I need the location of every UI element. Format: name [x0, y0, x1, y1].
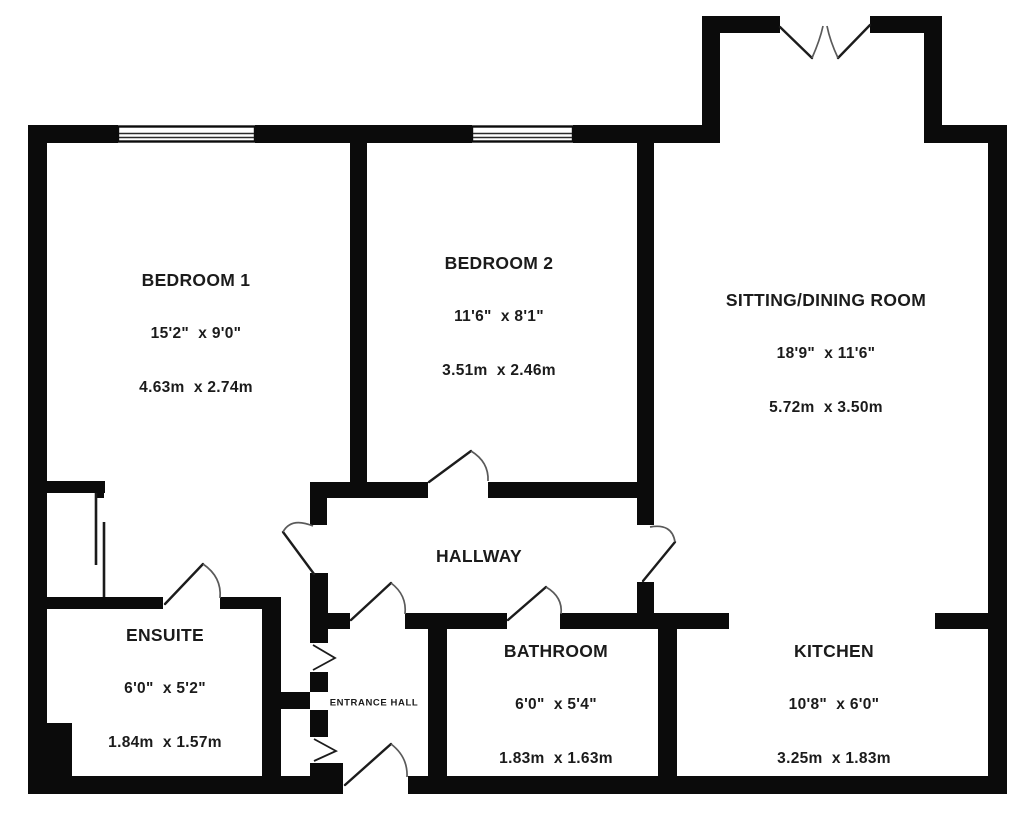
room-name: BATHROOM [499, 642, 613, 660]
room-dims-imperial: 6'0" x 5'2" [108, 680, 222, 698]
door-french-doors [780, 25, 870, 58]
room-dims-imperial: 15'2" x 9'0" [139, 325, 253, 343]
room-dims-imperial: 6'0" x 5'4" [499, 696, 613, 714]
door-bedroom1 [283, 523, 314, 574]
door-entrance [345, 744, 407, 785]
floorplan: BEDROOM 1 15'2" x 9'0" 4.63m x 2.74m BED… [0, 0, 1024, 813]
room-name: ENTRANCE HALL [330, 698, 419, 709]
room-label-bathroom: BATHROOM 6'0" x 5'4" 1.83m x 1.63m [499, 606, 613, 804]
room-label-sitting-dining: SITTING/DINING ROOM 18'9" x 11'6" 5.72m … [726, 255, 926, 453]
door-sitting-room [643, 526, 675, 581]
room-label-entrance-hall: ENTRANCE HALL [330, 662, 419, 745]
room-dims-metric: 5.72m x 3.50m [726, 399, 926, 417]
room-name: SITTING/DINING ROOM [726, 291, 926, 309]
room-dims-metric: 1.83m x 1.63m [499, 750, 613, 768]
door-bedroom2 [429, 451, 488, 482]
window-bedroom1 [118, 127, 255, 142]
room-dims-imperial: 11'6" x 8'1" [442, 308, 556, 326]
room-name: BEDROOM 2 [442, 254, 556, 272]
room-dims-metric: 1.84m x 1.57m [108, 734, 222, 752]
room-dims-imperial: 10'8" x 6'0" [777, 696, 891, 714]
room-label-bedroom1: BEDROOM 1 15'2" x 9'0" 4.63m x 2.74m [139, 235, 253, 433]
room-dims-imperial: 18'9" x 11'6" [726, 345, 926, 363]
room-name: KITCHEN [777, 642, 891, 660]
room-dims-metric: 3.25m x 1.83m [777, 750, 891, 768]
room-dims-metric: 4.63m x 2.74m [139, 379, 253, 397]
room-label-bedroom2: BEDROOM 2 11'6" x 8'1" 3.51m x 2.46m [442, 218, 556, 416]
room-name: ENSUITE [108, 626, 222, 644]
window-bedroom2 [472, 127, 573, 142]
room-name: BEDROOM 1 [139, 271, 253, 289]
room-dims-metric: 3.51m x 2.46m [442, 362, 556, 380]
room-label-ensuite: ENSUITE 6'0" x 5'2" 1.84m x 1.57m [108, 590, 222, 788]
room-label-hallway: HALLWAY [436, 511, 522, 601]
room-name: HALLWAY [436, 547, 522, 565]
door-entrance-hall-to-hallway [351, 583, 405, 620]
wardrobe-detail [46, 481, 105, 597]
room-label-kitchen: KITCHEN 10'8" x 6'0" 3.25m x 1.83m [777, 606, 891, 804]
